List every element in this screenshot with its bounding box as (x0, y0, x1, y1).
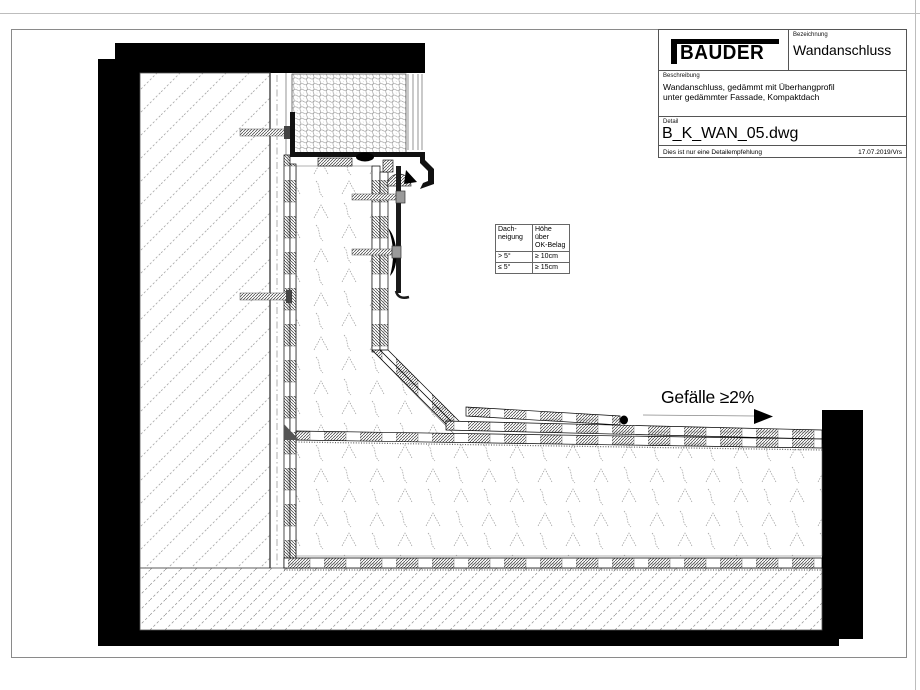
vapour-barrier (284, 558, 822, 568)
beschreibung-line1: Wandanschluss, gedämmt mit Überhangprofi… (663, 82, 835, 92)
bezeichnung-label: Bezeichnung (793, 32, 828, 38)
footer-date: 17.07.2019/Vrs (858, 149, 902, 156)
cell-hoehe-2: ≥ 15cm (533, 263, 570, 274)
slope-table-header-row: Dach- neigung Höhe über OK-Belag (496, 225, 570, 252)
beschreibung-line2: unter gedämmter Fassade, Kompaktdach (663, 92, 835, 102)
title-block: BAUDER Bezeichnung Wandanschluss Beschre… (658, 29, 907, 158)
left-black-bar (98, 59, 140, 646)
beschreibung-value: Wandanschluss, gedämmt mit Überhangprofi… (663, 82, 835, 102)
bezeichnung-cell: Bezeichnung Wandanschluss (789, 30, 906, 71)
cell-neigung-2: ≤ 5° (496, 263, 533, 274)
right-black-bar (822, 410, 863, 639)
table-row: ≤ 5° ≥ 15cm (496, 263, 570, 274)
header-hoehe-line2: OK-Belag (535, 242, 565, 249)
top-black-bar (115, 43, 425, 73)
title-block-row-beschreibung: Beschreibung Wandanschluss, gedämmt mit … (659, 71, 906, 117)
logo-text: BAUDER (680, 42, 764, 65)
title-block-row-detail: Detail B_K_WAN_05.dwg (659, 117, 906, 146)
detail-filename: B_K_WAN_05.dwg (662, 125, 798, 143)
membrane-termination (318, 158, 352, 166)
beschreibung-label: Beschreibung (663, 73, 700, 79)
slope-table-header-neigung: Dach- neigung (496, 225, 533, 252)
slope-table: Dach- neigung Höhe über OK-Belag > 5° ≥ … (495, 224, 570, 274)
logo-cell: BAUDER (659, 30, 789, 71)
cell-neigung-1: > 5° (496, 252, 533, 263)
wall-section-hatch (140, 73, 270, 568)
roof-slab-hatch (140, 568, 822, 630)
bezeichnung-value: Wandanschluss (793, 42, 891, 58)
upstand-vapour-membrane (284, 155, 296, 568)
cad-sheet: { "title_block": { "logo": "BAUDER", "be… (0, 0, 920, 690)
cell-hoehe-1: ≥ 10cm (533, 252, 570, 263)
clamping-seal (387, 170, 417, 186)
header-hoehe-line1: Höhe über (535, 226, 552, 241)
title-block-row-footer: Dies ist nur eine Detailempfehlung 17.07… (659, 146, 906, 159)
header-neigung-line2: neigung (498, 234, 523, 241)
slope-table-header-hoehe: Höhe über OK-Belag (533, 225, 570, 252)
slope-annotation: Gefälle ≥2% (661, 387, 754, 408)
membrane-end-seal (620, 416, 628, 425)
table-row: > 5° ≥ 10cm (496, 252, 570, 263)
bauder-logo: BAUDER (671, 39, 779, 64)
header-neigung-line1: Dach- (498, 226, 517, 233)
sealant-bead (356, 153, 374, 162)
wall-face-layers (270, 73, 286, 568)
slope-arrowhead (754, 409, 773, 424)
logo-left-bar (671, 39, 677, 64)
footer-note: Dies ist nur eine Detailempfehlung (663, 149, 762, 156)
bottom-black-bar (140, 630, 839, 646)
title-block-row-logo: BAUDER Bezeichnung Wandanschluss (659, 30, 906, 71)
facade-insulation (292, 74, 422, 153)
slope-arrow (643, 409, 773, 424)
